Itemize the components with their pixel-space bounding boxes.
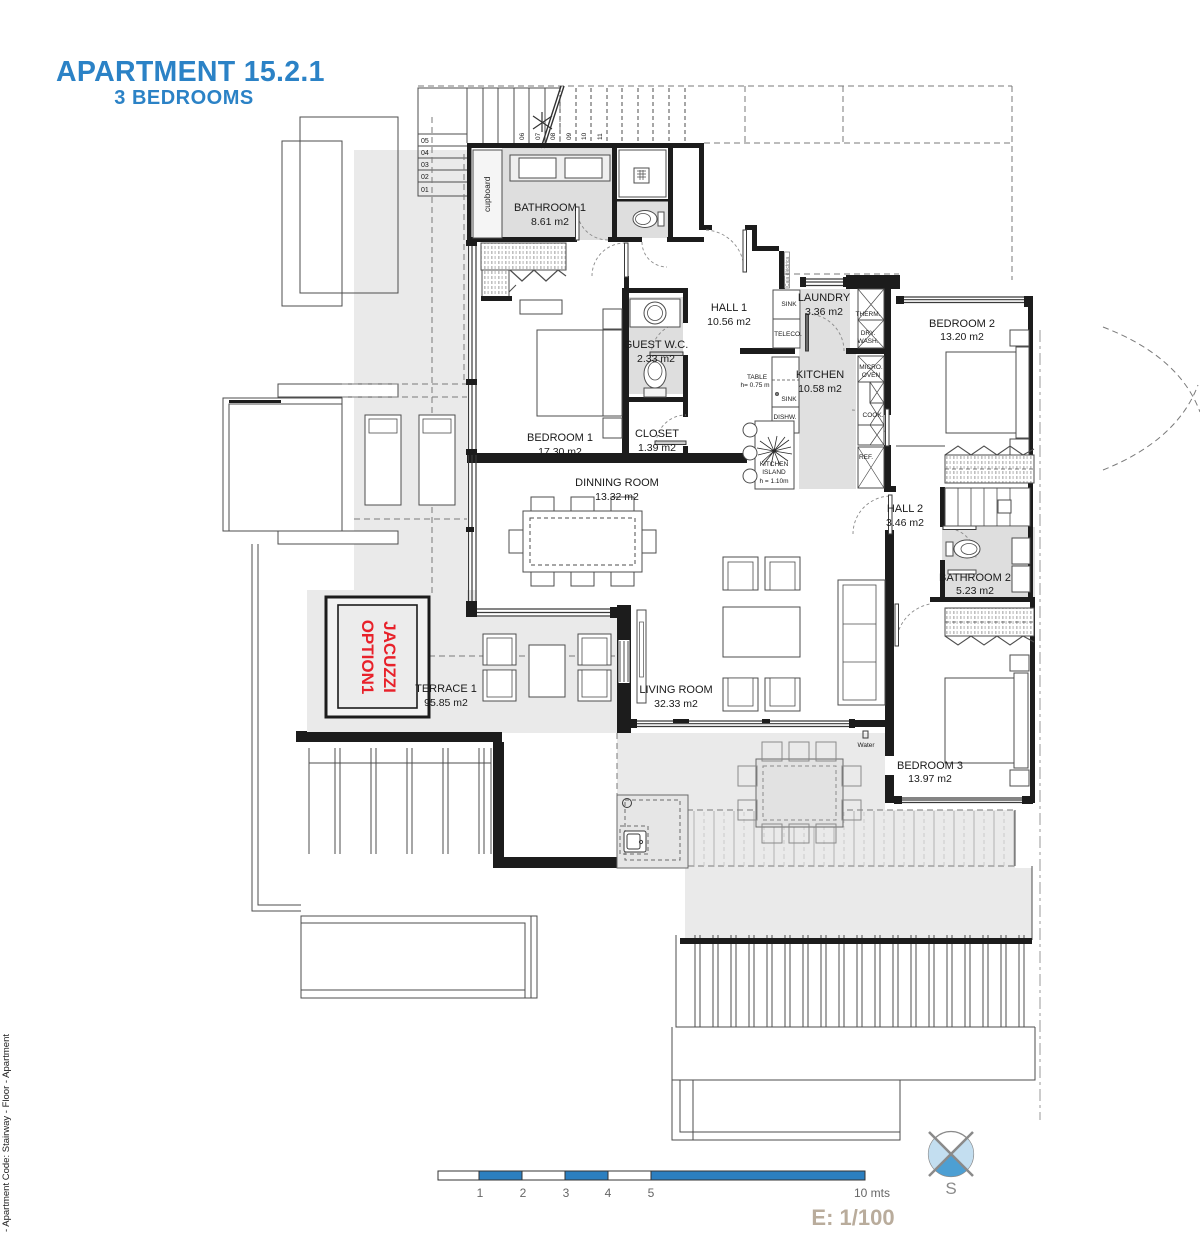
svg-text:DINNING ROOM: DINNING ROOM [575,477,659,489]
svg-text:BEDROOM 1: BEDROOM 1 [527,432,593,444]
svg-text:h= 0.75 m: h= 0.75 m [740,382,769,389]
svg-text:LAUNDRY: LAUNDRY [798,292,851,304]
svg-text:13.97 m2: 13.97 m2 [908,773,952,785]
svg-text:JACUZZI: JACUZZI [380,621,399,693]
svg-text:WASH.: WASH. [857,338,878,345]
svg-text:10 mts: 10 mts [854,1186,890,1200]
svg-text:1.39 m2: 1.39 m2 [638,442,676,454]
svg-text:S: S [945,1179,956,1198]
svg-text:Water: Water [857,742,875,749]
svg-text:4: 4 [605,1186,612,1200]
svg-text:E: 1/100: E: 1/100 [811,1205,894,1230]
svg-text:10: 10 [581,132,588,140]
svg-text:SINK: SINK [781,301,797,308]
svg-text:HALL 2: HALL 2 [887,503,923,515]
svg-text:APARTMENT 15.2.1: APARTMENT 15.2.1 [56,56,325,88]
svg-text:KITCHEN: KITCHEN [796,369,844,381]
svg-text:10.58 m2: 10.58 m2 [798,383,842,395]
svg-text:BEDROOM 2: BEDROOM 2 [929,318,995,330]
svg-text:2: 2 [520,1186,527,1200]
svg-text:cupboard: cupboard [482,176,492,212]
svg-text:Caja eléctrica: Caja eléctrica [785,256,791,287]
svg-text:5.23 m2: 5.23 m2 [956,585,994,597]
svg-text:OPTION1: OPTION1 [358,620,377,695]
svg-text:BATHROOM 2: BATHROOM 2 [939,572,1011,584]
svg-text:3: 3 [563,1186,570,1200]
svg-text:02: 02 [421,174,429,181]
svg-text:11: 11 [597,133,604,140]
svg-text:03: 03 [421,162,429,169]
svg-text:32.33 m2: 32.33 m2 [654,698,698,710]
svg-text:8.61 m2: 8.61 m2 [531,216,569,228]
svg-text:05: 05 [421,138,429,145]
svg-text:OVEN: OVEN [862,372,881,379]
svg-text:GUEST W.C.: GUEST W.C. [624,339,689,351]
svg-text:17.30 m2: 17.30 m2 [538,446,582,458]
svg-text:5: 5 [648,1186,655,1200]
svg-text:2.33 m2: 2.33 m2 [637,353,675,365]
svg-text:06: 06 [519,132,526,140]
svg-text:TABLE: TABLE [747,374,768,381]
svg-text:3.46 m2: 3.46 m2 [886,517,924,529]
svg-text:3 BEDROOMS: 3 BEDROOMS [114,87,253,109]
svg-text:04: 04 [421,150,429,157]
svg-text:3.36 m2: 3.36 m2 [805,306,843,318]
svg-text:1: 1 [477,1186,484,1200]
svg-text:13.20 m2: 13.20 m2 [940,331,984,343]
svg-text:SINK: SINK [781,396,797,403]
svg-text:CLOSET: CLOSET [635,428,679,440]
svg-text:TERRACE 1: TERRACE 1 [415,683,477,695]
svg-text:REF.: REF. [859,454,873,461]
svg-text:LIVING ROOM: LIVING ROOM [639,684,712,696]
svg-text:07: 07 [535,132,542,140]
svg-text:- Apartment Code: Stairway - F: - Apartment Code: Stairway - Floor - Apa… [1,1034,12,1232]
svg-text:BATHROOM 1: BATHROOM 1 [514,202,586,214]
svg-text:ISLAND: ISLAND [762,469,786,476]
svg-text:MICRO.: MICRO. [859,364,883,371]
svg-text:10.56 m2: 10.56 m2 [707,316,751,328]
svg-text:08: 08 [550,132,557,140]
svg-text:BEDROOM 3: BEDROOM 3 [897,760,963,772]
svg-text:COOK.: COOK. [863,412,884,419]
svg-text:THERM.: THERM. [856,311,881,318]
svg-text:13.32 m2: 13.32 m2 [595,491,639,503]
svg-text:h = 1.10m: h = 1.10m [759,478,788,485]
svg-text:KITCHEN: KITCHEN [760,461,789,468]
svg-text:09: 09 [566,132,573,140]
svg-text:95.85 m2: 95.85 m2 [424,697,468,709]
svg-text:TELECO.: TELECO. [774,331,802,338]
svg-text:DISHW.: DISHW. [773,414,796,421]
svg-text:01: 01 [421,187,429,194]
svg-text:HALL 1: HALL 1 [711,302,747,314]
svg-text:DRY.: DRY. [861,330,876,337]
